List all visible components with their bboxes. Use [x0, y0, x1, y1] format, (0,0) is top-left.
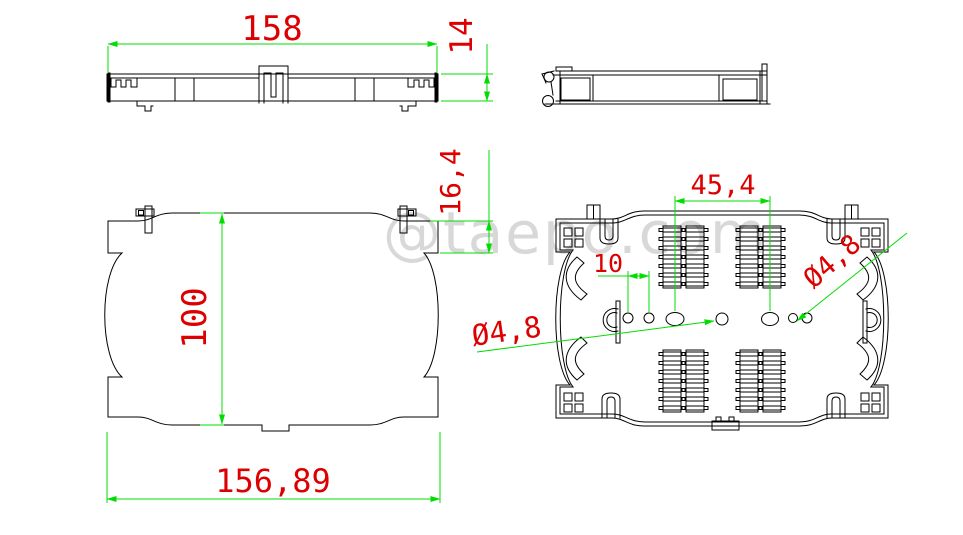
drawing-sheet: @taepo.com	[0, 0, 963, 535]
dim-45-4-label: 45,4	[690, 170, 755, 201]
dim-16-4-label: 16,4	[434, 148, 467, 215]
center-latch	[259, 66, 288, 103]
foot-tab-left	[137, 101, 153, 111]
castellation-right	[408, 78, 434, 87]
cad-canvas: @taepo.com	[0, 0, 963, 535]
castellation-left	[111, 78, 137, 87]
corner-holes-bl	[564, 393, 583, 412]
tray-tab-right	[845, 205, 858, 219]
dim-dia-left-label: Ø4,8	[470, 309, 544, 352]
center-bracket-left	[603, 301, 620, 343]
view-end-side	[542, 64, 770, 107]
dim-14-label: 14	[444, 17, 480, 54]
dimension-lines	[107, 44, 907, 503]
hinge-hooks	[542, 71, 554, 107]
center-holes	[623, 313, 812, 326]
dim-10-label: 10	[593, 249, 623, 278]
foot-tab-right	[400, 101, 416, 111]
view-front-side	[107, 66, 438, 111]
dim-158-label: 158	[241, 9, 302, 49]
bottom-latch	[712, 417, 739, 430]
end-flange	[762, 64, 767, 104]
cover-tab-left	[136, 206, 154, 233]
center-bracket-right	[863, 301, 881, 343]
corner-holes-br	[861, 393, 880, 412]
dim-100-label: 100	[175, 287, 215, 348]
dim-156-89-label: 156,89	[215, 462, 331, 500]
corner-holes-tr	[861, 228, 880, 247]
